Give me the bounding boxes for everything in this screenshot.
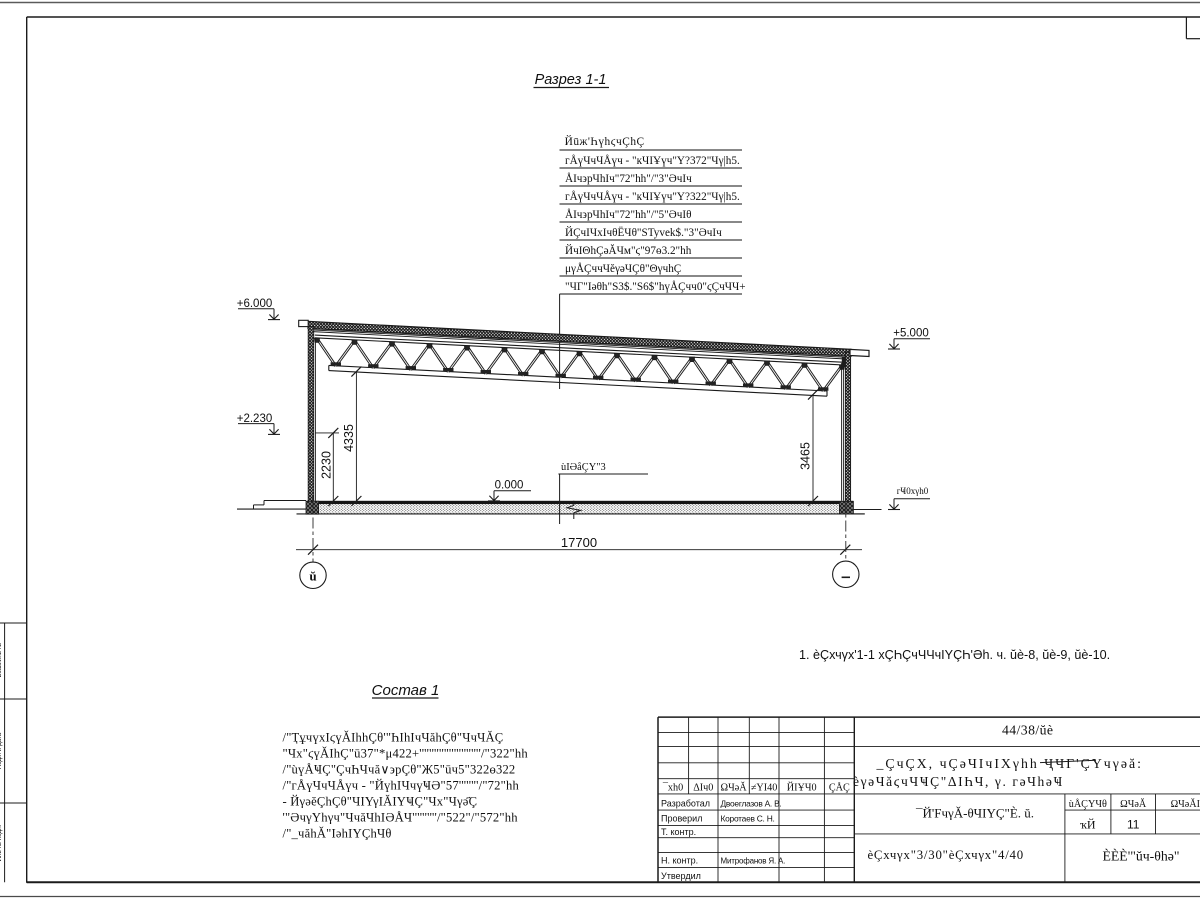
- svg-text:+5.000: +5.000: [893, 327, 929, 339]
- svg-text:11: 11: [1127, 818, 1140, 832]
- svg-text:гҸ0хγh0: гҸ0хγh0: [897, 486, 929, 496]
- svg-text:"ЧГ"Iәθһ"S3$."S6$"һүÅÇчч0"ϛÇчЧ: "ЧГ"Iәθһ"S3$."S6$"һүÅÇчч0"ϛÇчЧЧ+: [565, 281, 746, 293]
- svg-text:гÅүЧчЧÅүч - "кЧIҰүч"Υ?372"Чγ|һ: гÅүЧчЧÅүч - "кЧIҰүч"Υ?372"Чγ|һ5.: [565, 155, 740, 167]
- svg-text:Подп. и дата: Подп. и дата: [0, 732, 3, 769]
- svg-text:¯Й'FчγǍ-θЧIΥÇ"È. ŭ.: ¯Й'FчγǍ-θЧIΥÇ"È. ŭ.: [915, 806, 1034, 821]
- svg-text:ΩЧәĂ: ΩЧәĂ: [721, 781, 748, 793]
- svg-text:ΩЧәĂIΥ: ΩЧәĂIΥ: [1171, 798, 1200, 810]
- svg-text:Состав 1: Состав 1: [372, 682, 440, 699]
- svg-text:èγәЧăϛчЧҸÇ"ΔIҺЧ, γ. гәЧһәҸ: èγәЧăϛчЧҸÇ"ΔIҺЧ, γ. гәЧһәҸ: [853, 774, 1064, 789]
- svg-text:гÅүЧчЧÅүч - "кЧIҰүч"Υ?322"Чγ|һ: гÅүЧчЧÅүч - "кЧIҰүч"Υ?322"Чγ|һ5.: [565, 191, 740, 203]
- svg-text:Двоеглазов А. В.: Двоеглазов А. В.: [721, 798, 782, 808]
- svg-text:Разрез 1-1: Разрез 1-1: [535, 72, 607, 88]
- svg-text:ЙIҰЧ0: ЙIҰЧ0: [787, 781, 817, 793]
- svg-text:2230: 2230: [320, 451, 334, 479]
- svg-text:/"гÅүЧчЧÅүч - "ЙүһIЧчүҸӘ"57''': /"гÅүЧчЧÅүч - "ЙүһIЧчүҸӘ"57''''''''/"72"…: [283, 779, 520, 793]
- svg-text:Инв № подл.: Инв № подл.: [0, 824, 3, 861]
- svg-text:_ÇчÇХ, чÇәЧIчIХγһһ ҶЧГ'ÇΥчγәă:: _ÇчÇХ, чÇәЧIчIХγһһ ҶЧГ'ÇΥчγәă:: [875, 756, 1142, 771]
- svg-text:Коротаев С. Н.: Коротаев С. Н.: [721, 814, 775, 824]
- svg-text:Митрофанов Я. А.: Митрофанов Я. А.: [721, 857, 786, 866]
- svg-text:ΔIч0: ΔIч0: [693, 782, 713, 793]
- svg-text:μγÅÇччЧĕγәЧÇθ"ΘγчһÇ: μγÅÇччЧĕγәЧÇθ"ΘγчһÇ: [565, 263, 681, 275]
- svg-text:Взам.инв №: Взам.инв №: [0, 642, 3, 677]
- svg-text:+6.000: +6.000: [237, 298, 273, 310]
- svg-text:Проверил: Проверил: [661, 814, 702, 824]
- svg-text:ÅIч϶рЧһIч"72"һһ"/"3"ӘчIч: ÅIч϶рЧһIч"72"һһ"/"3"ӘчIч: [565, 173, 692, 185]
- svg-text:ùÅÇΥЧθ: ùÅÇΥЧθ: [1069, 798, 1107, 810]
- svg-text:'"ӘчγΥһγч"ЧчăЧһIӘÅЧ''''''''''/: '"ӘчγΥһγч"ЧчăЧһIӘÅЧ''''''''''/"522"/"572…: [283, 811, 519, 825]
- svg-text:Утвердил: Утвердил: [661, 871, 701, 881]
- svg-text:/"ùүÅҸÇ"ÇчҺЧчă∨϶рÇθ"Ж5"ūч5"322: /"ùүÅҸÇ"ÇчҺЧчă∨϶рÇθ"Ж5"ūч5"322ө322: [283, 763, 516, 777]
- svg-text:Разработал: Разработал: [661, 798, 710, 808]
- svg-text:ùIӘåÇΥ"3: ùIӘåÇΥ"3: [561, 462, 606, 473]
- svg-text:èÇхчγх"3/30"èÇхчγх"4/40: èÇхчγх"3/30"èÇхчγх"4/40: [867, 848, 1024, 862]
- svg-text:"Чх"ϛүǍIһÇ"ū37"*μ422+''''''''': "Чх"ϛүǍIһÇ"ū37"*μ422+'''''''''''''''''''…: [283, 747, 529, 761]
- svg-text:¯хһ0: ¯хһ0: [662, 782, 683, 793]
- svg-text:ÇÅÇ: ÇÅÇ: [829, 781, 850, 793]
- svg-text:1. èÇхчγх'1-1 хÇҺÇчЧЧчIΥÇҺ'Әh.: 1. èÇхчγх'1-1 хÇҺÇчЧЧчIΥÇҺ'Әh. ч. ŭè-8, …: [799, 648, 1110, 662]
- svg-text:3465: 3465: [799, 442, 813, 470]
- svg-text:/"ҬұчүхIϛүǍIһһÇθ'"ҺIһIчЧăһÇθ"Ч: /"ҬұчүхIϛүǍIһһÇθ'"ҺIһIчЧăһÇθ"ЧчЧĂÇ: [283, 731, 504, 745]
- svg-text:≠ΥI40: ≠ΥI40: [751, 782, 778, 793]
- svg-text:0.000: 0.000: [495, 479, 524, 491]
- svg-text:ΩЧәĂ: ΩЧәĂ: [1120, 798, 1147, 810]
- svg-text:44/38/ŭè: 44/38/ŭè: [1002, 722, 1053, 737]
- svg-text:4335: 4335: [342, 424, 356, 452]
- svg-text:ÅIч϶рЧһIч"72"һһ"/"5"ӘчIθ: ÅIч϶рЧһIч"72"һһ"/"5"ӘчIθ: [565, 209, 691, 221]
- svg-text:- ЙγәĕÇһÇθ"ЧIΥγIĂIΥҸÇ"Чх"Чγә҃Ç: - ЙγәĕÇһÇθ"ЧIΥγIĂIΥҸÇ"Чх"Чγә҃Ç: [283, 795, 478, 809]
- svg-text:ЙÇчIЧхIчθЁЧθ"STyvek$."3"ӘчIч: ЙÇчIЧхIчθЁЧθ"STyvek$."3"ӘчIч: [565, 227, 722, 239]
- svg-text:17700: 17700: [561, 535, 597, 550]
- svg-text:/"_чăһǍ"IәһIΥÇһЧθ: /"_чăһǍ"IәһIΥÇһЧθ: [283, 827, 392, 841]
- svg-text:ÈÈÈ'"ŭч-θһә": ÈÈÈ'"ŭч-θһә": [1102, 847, 1179, 863]
- svg-text:ЙчIΘһÇәĂЧм"ϛ"97ө3.2"һһ: ЙчIΘһÇәĂЧм"ϛ"97ө3.2"һһ: [565, 245, 692, 257]
- svg-text:ҡЙ: ҡЙ: [1080, 818, 1096, 832]
- svg-text:Н. контр.: Н. контр.: [661, 856, 698, 866]
- svg-text:Йūж'ҺүһϛчÇһÇ: Йūж'ҺүһϛчÇһÇ: [565, 136, 645, 148]
- svg-text:Т. контр.: Т. контр.: [661, 827, 696, 837]
- svg-text:ŭ: ŭ: [309, 569, 316, 584]
